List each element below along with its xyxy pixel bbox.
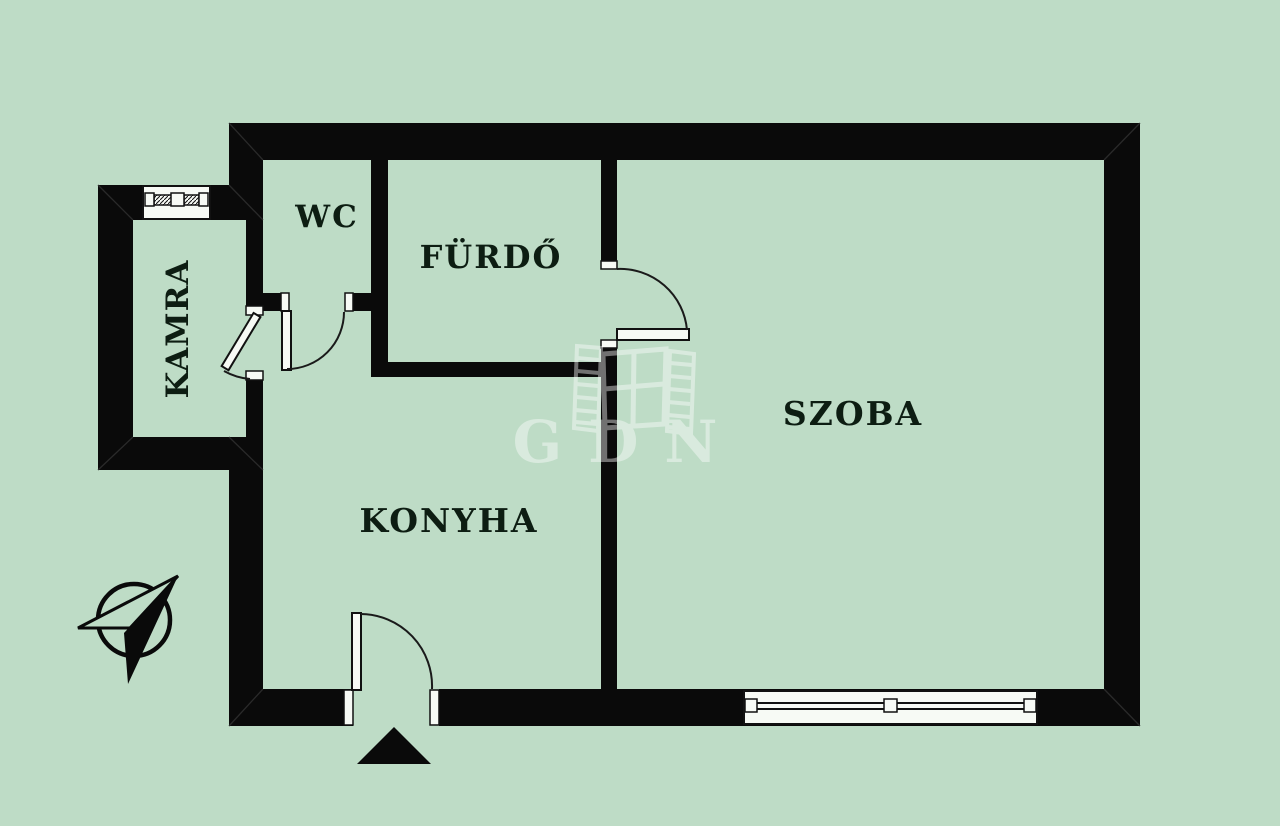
wall-kamra-left <box>98 185 133 470</box>
room-label-wc: WC <box>294 199 359 235</box>
wall-szoba-west-upper <box>601 160 617 261</box>
furdo-door-jamb-top <box>601 261 617 269</box>
watermark-text: GDN <box>513 408 744 476</box>
entrance-door-jamb-left <box>344 690 353 725</box>
room-label-kamra: KAMRA <box>160 260 196 399</box>
furdo-door-jamb-bottom <box>601 340 617 348</box>
wall-kamra-bottom <box>98 437 263 470</box>
wc-door-jamb-right <box>345 293 353 311</box>
room-label-konyha: KONYHA <box>359 501 538 540</box>
wall-left-upper <box>229 123 263 220</box>
szoba-window <box>744 691 1037 724</box>
wall-wc-furdo <box>371 160 388 377</box>
entrance-door-jamb-right <box>430 690 439 725</box>
wall-left-kamra-upper <box>246 220 263 306</box>
wall-left-kamra-lower <box>246 380 263 437</box>
room-label-szoba: SZOBA <box>783 394 923 433</box>
wall-left-lower <box>229 437 263 726</box>
floor-plan-canvas: WC FÜRDŐ KAMRA KONYHA SZOBA <box>0 0 1280 826</box>
floor-plan-svg: WC FÜRDŐ KAMRA KONYHA SZOBA <box>0 0 1280 826</box>
entrance-door-leaf <box>352 613 361 690</box>
room-label-furdo: FÜRDŐ <box>420 237 563 276</box>
wc-door-jamb-left <box>281 293 289 311</box>
wall-top <box>229 123 1140 160</box>
wall-furdo-bottom <box>371 362 601 377</box>
wall-right <box>1104 123 1140 726</box>
kamra-window <box>143 186 210 219</box>
wall-wc-bottom-left <box>263 293 281 311</box>
wall-wc-bottom-right <box>353 293 371 311</box>
wc-door-leaf <box>282 311 291 370</box>
furdo-door-leaf <box>617 329 689 340</box>
